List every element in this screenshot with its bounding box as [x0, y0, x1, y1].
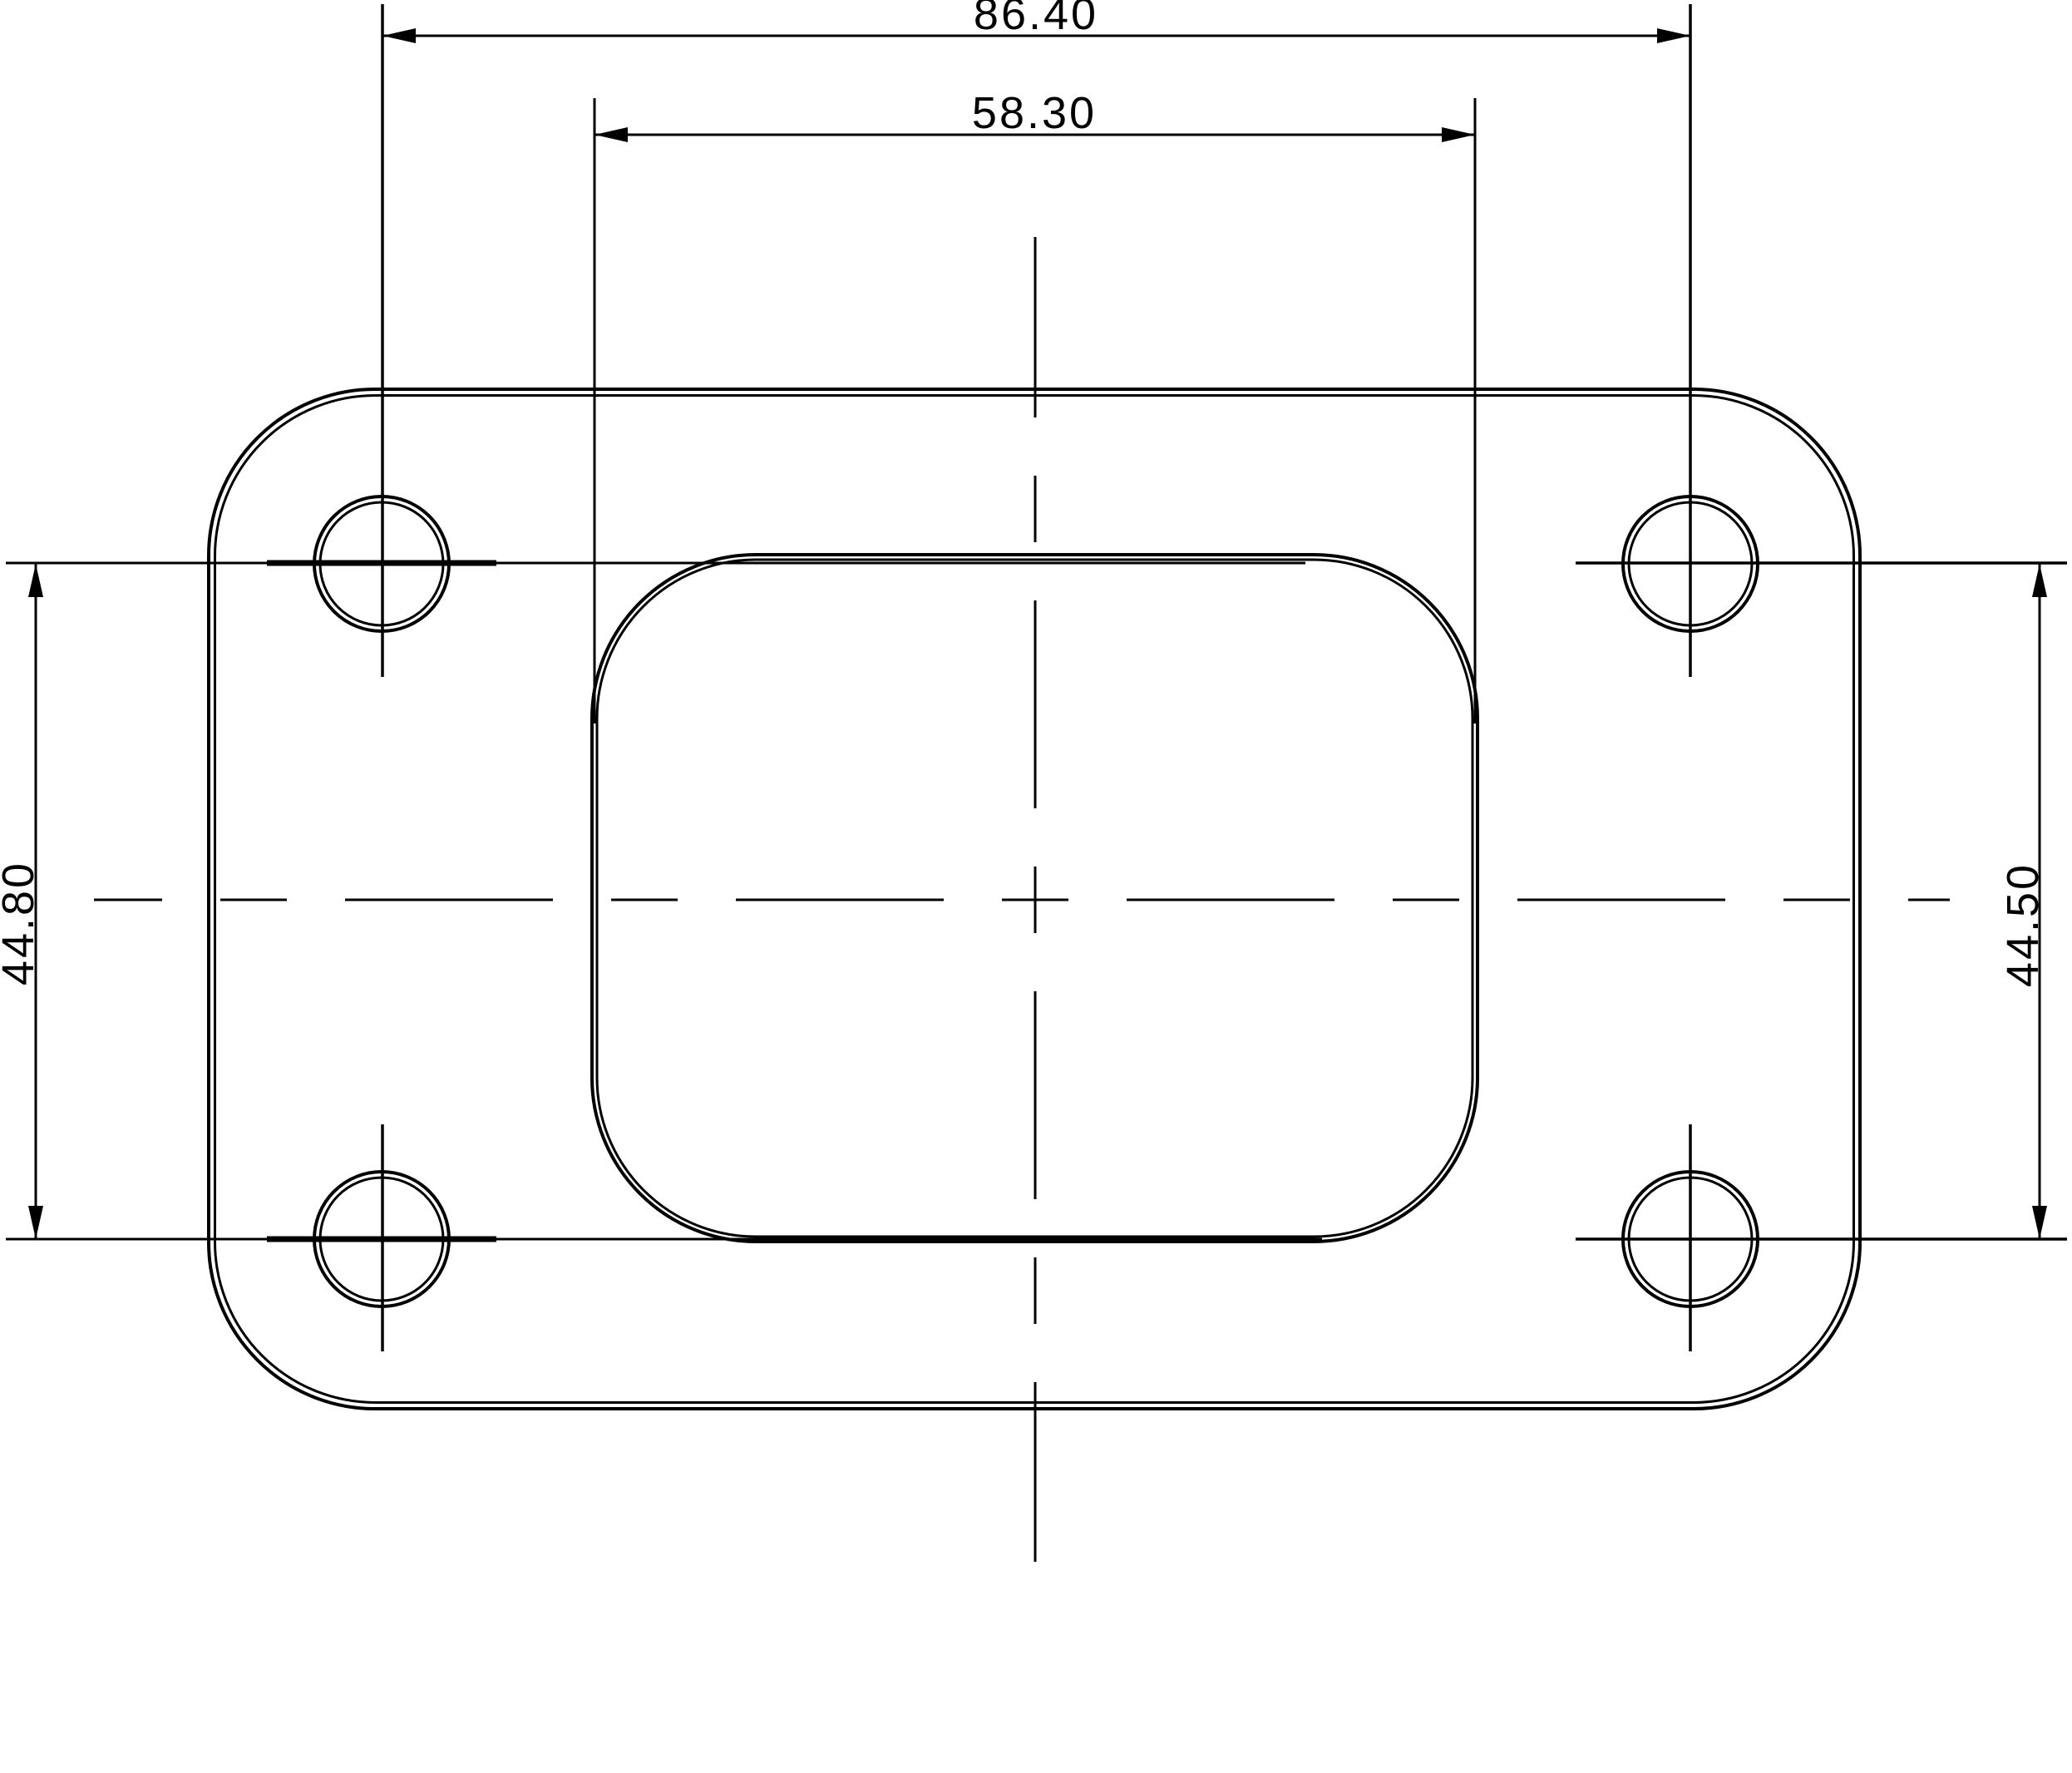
- arrowhead-up-icon: [2032, 564, 2047, 597]
- dimension-label-opening-width: 58.30: [972, 88, 1097, 138]
- arrowhead-up-icon: [28, 564, 43, 597]
- dimension-label-bolt-span-left: 44.80: [0, 861, 43, 985]
- dimension-label-bolt-span-width: 86.40: [974, 0, 1098, 39]
- dimension-label-bolt-span-right: 44.50: [1998, 862, 2048, 987]
- drawing-sheet: 86.40 58.30 44.80 44.50: [0, 0, 2072, 1773]
- arrowhead-left-icon: [382, 28, 416, 43]
- technical-drawing: 86.40 58.30 44.80 44.50: [0, 0, 2072, 1773]
- arrowhead-right-icon: [1442, 127, 1475, 142]
- arrowhead-down-icon: [2032, 1206, 2047, 1239]
- arrowhead-right-icon: [1657, 28, 1690, 43]
- arrowhead-left-icon: [594, 127, 628, 142]
- arrowhead-down-icon: [28, 1206, 43, 1239]
